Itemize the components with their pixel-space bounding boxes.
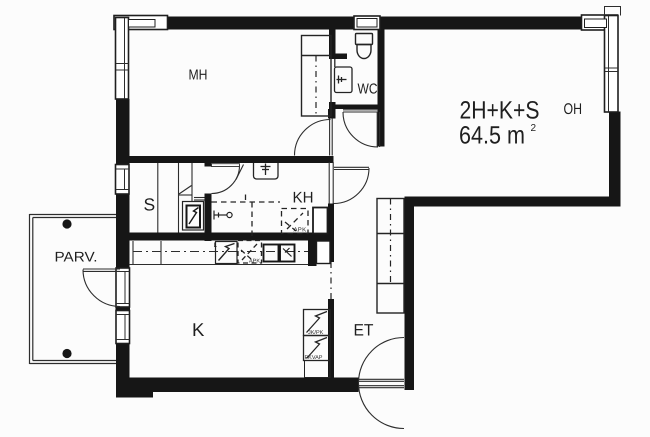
svg-text:64.5 m: 64.5 m [459,122,525,150]
svg-text:2: 2 [531,123,537,134]
svg-text:MH: MH [189,68,208,84]
svg-text:JK/PK: JK/PK [308,330,324,336]
svg-text:2H+K+S: 2H+K+S [460,97,540,125]
svg-text:PKVAP: PKVAP [305,355,323,361]
svg-text:WC: WC [358,82,378,98]
svg-text:OH: OH [564,101,583,118]
svg-text:S: S [144,195,156,215]
svg-text:APK: APK [294,227,307,234]
svg-text:PARV.: PARV. [55,249,98,265]
svg-text:L: L [214,242,218,249]
svg-text:ET: ET [354,322,374,340]
svg-text:K: K [192,319,205,340]
svg-text:KH: KH [293,190,314,207]
svg-text:APK: APK [249,259,260,265]
